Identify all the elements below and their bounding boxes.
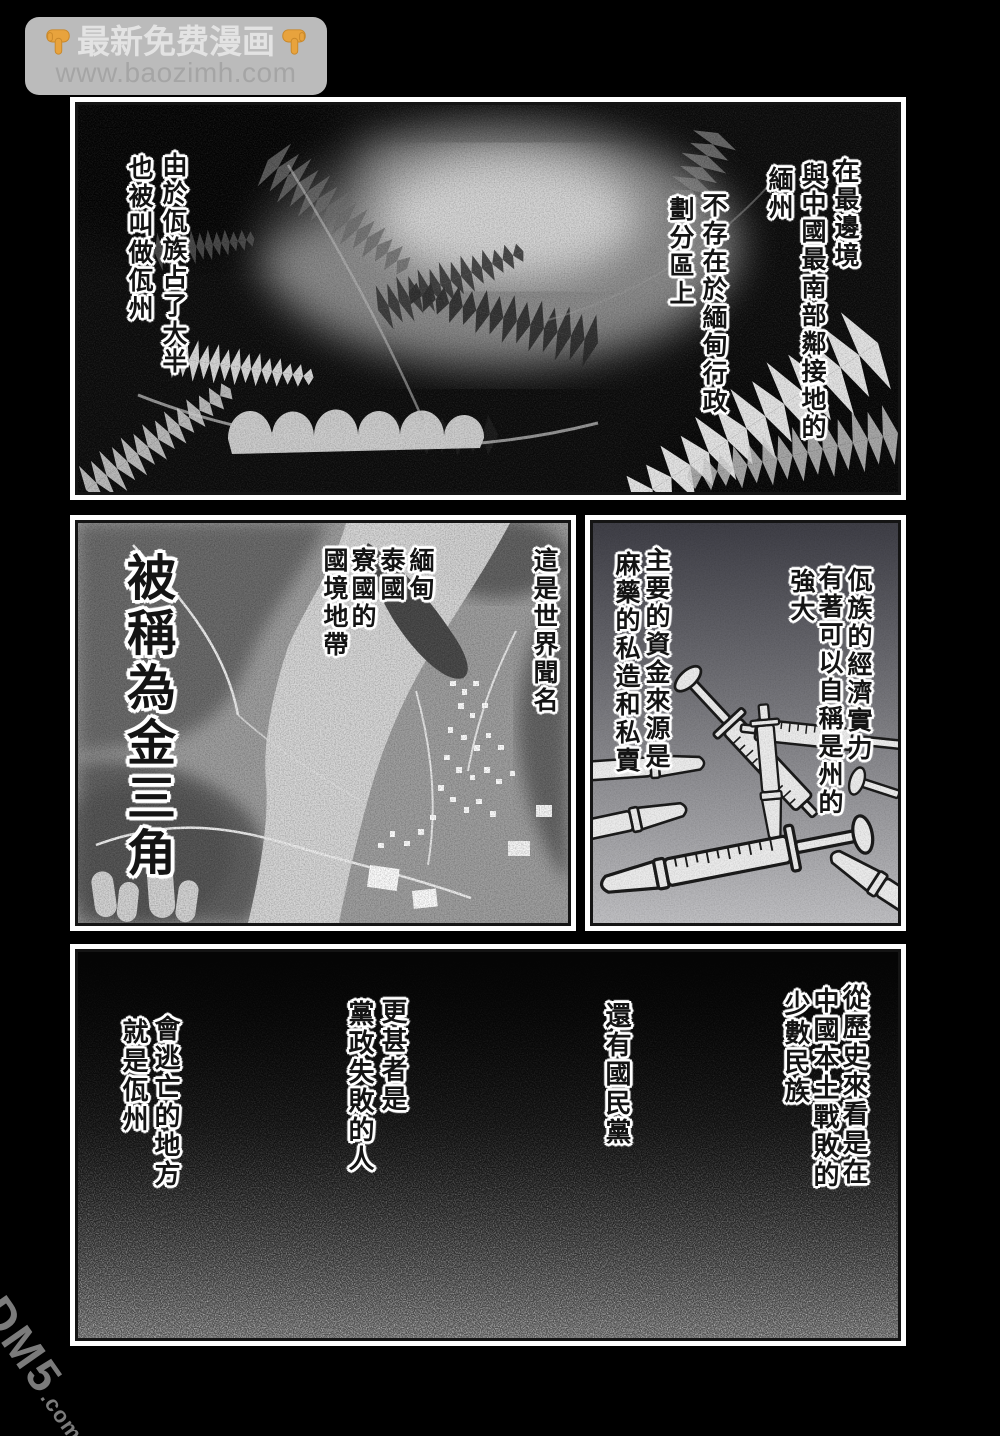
caption-column: 也被叫做佤州 bbox=[126, 155, 151, 323]
caption-column: 麻藥的私造和私賣 bbox=[613, 551, 638, 775]
caption-column: 黨政失敗的人 bbox=[347, 1000, 373, 1174]
caption-column: 少數民族 bbox=[783, 990, 809, 1106]
caption-column: 佤族的經濟實力 bbox=[845, 567, 870, 763]
caption-column: 在最邊境 bbox=[832, 158, 857, 270]
watermark-url: www.baozimh.com bbox=[56, 59, 297, 87]
caption-column: 就是佤州 bbox=[121, 1018, 147, 1134]
dm5-watermark-main: DM5 bbox=[0, 1287, 74, 1404]
caption-column: 與中國最南部鄰接地的 bbox=[799, 162, 824, 442]
caption-column: 從歷史來看是在 bbox=[841, 984, 867, 1187]
panel-dark-narration: 從歷史來看是在 中國本土戰敗的 少數民族 還有國民黨 更甚者是 黨政失敗的人 會… bbox=[75, 949, 901, 1341]
caption-column: 寮國的 bbox=[349, 547, 374, 631]
caption-column: 緬州 bbox=[766, 166, 791, 222]
caption-column: 緬甸 bbox=[407, 547, 432, 603]
caption-title-golden-triangle: 被稱為金三角 bbox=[122, 552, 171, 882]
caption-column: 泰國 bbox=[378, 547, 403, 603]
caption-column: 這是世界聞名 bbox=[531, 547, 556, 715]
caption-column: 國境地帶 bbox=[321, 547, 346, 659]
caption-column: 更甚者是 bbox=[380, 998, 406, 1114]
panel-jungle: 在最邊境 與中國最南部鄰接地的 緬州 不存在於緬甸行政 劃分區上 由於佤族占了大… bbox=[75, 102, 901, 495]
caption-column: 不存在於緬甸行政 bbox=[700, 192, 725, 416]
caption-column: 中國本土戰敗的 bbox=[812, 987, 838, 1190]
panel-map: 這是世界聞名 緬甸 泰國 寮國的 國境地帶 被稱為金三角 bbox=[75, 520, 571, 926]
watermark-line1: 最新免费漫画 bbox=[43, 25, 309, 60]
caption-column: 會逃亡的地方 bbox=[153, 1015, 179, 1189]
caption-column: 由於佤族占了大半 bbox=[160, 152, 185, 376]
dm5-watermark-suffix: .com bbox=[36, 1386, 88, 1436]
pointing-down-hand-icon bbox=[43, 27, 73, 57]
caption-column: 還有國民黨 bbox=[604, 1002, 630, 1147]
dark-gradient-art bbox=[78, 952, 898, 1338]
caption-column: 有著可以自稱是州的 bbox=[816, 565, 841, 817]
caption-column: 劃分區上 bbox=[667, 196, 692, 308]
caption-column: 強大 bbox=[788, 568, 813, 624]
site-watermark-banner: 最新免费漫画 www.baozimh.com bbox=[25, 17, 327, 95]
manga-page: 在最邊境 與中國最南部鄰接地的 緬州 不存在於緬甸行政 劃分區上 由於佤族占了大… bbox=[0, 0, 1000, 1436]
caption-column: 主要的資金來源是 bbox=[643, 547, 668, 771]
watermark-slogan: 最新免费漫画 bbox=[77, 25, 275, 60]
panel-syringes: 佤族的經濟實力 有著可以自稱是州的 強大 主要的資金來源是 麻藥的私造和私賣 bbox=[590, 520, 901, 926]
jungle-art bbox=[78, 105, 898, 492]
pointing-down-hand-icon bbox=[279, 27, 309, 57]
